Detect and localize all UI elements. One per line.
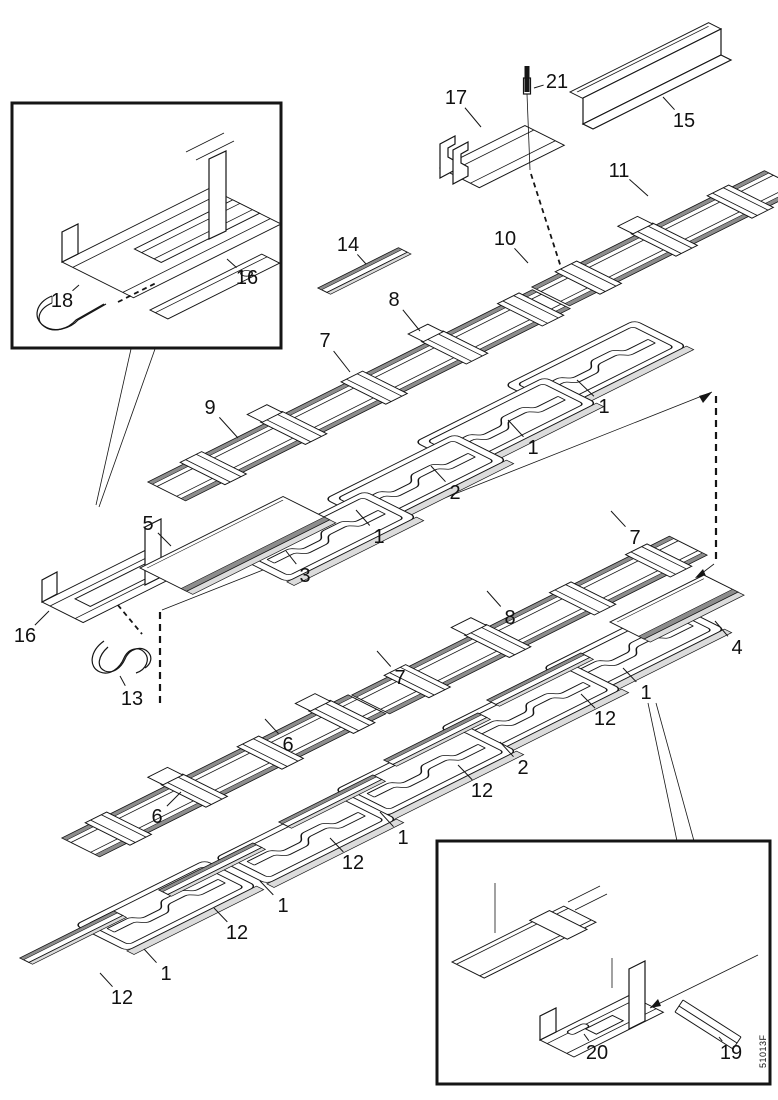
callout-label-1: 1 (598, 396, 609, 418)
callout-label-5: 5 (142, 513, 153, 535)
channel-bracket-17 (440, 126, 564, 188)
cable-strap-13 (92, 641, 151, 673)
callout-label-20: 20 (586, 1042, 608, 1064)
callout-label-14: 14 (337, 234, 359, 256)
leader-line (403, 310, 420, 331)
callout-label-7: 7 (394, 667, 405, 689)
parts-diagram-page: 51013F (0, 0, 778, 1100)
leader-line (35, 611, 49, 625)
angle-bracket-15 (570, 23, 731, 129)
leader-line (334, 351, 350, 372)
callout-label-8: 8 (504, 607, 515, 629)
callout-label-16: 16 (236, 267, 258, 289)
callout-label-10: 10 (494, 228, 516, 250)
figure-code: 51013F (758, 1034, 768, 1068)
callout-label-2: 2 (517, 757, 528, 779)
callout-label-4: 4 (731, 637, 742, 659)
leader-line (629, 179, 648, 196)
leader-line (611, 511, 626, 527)
callout-label-7: 7 (319, 330, 330, 352)
callout-label-2: 2 (449, 482, 460, 504)
channel-end-plate (629, 961, 645, 1029)
leader-line (219, 417, 238, 438)
leader-line (663, 97, 675, 110)
callout-label-12: 12 (111, 987, 133, 1009)
callout-label-3: 3 (299, 565, 310, 587)
callout-label-1: 1 (397, 827, 408, 849)
leader-line (487, 591, 501, 607)
callout-label-7: 7 (629, 527, 640, 549)
callout-label-1: 1 (160, 963, 171, 985)
leader-line (534, 85, 544, 88)
callout-label-12: 12 (342, 852, 364, 874)
callout-label-1: 1 (527, 437, 538, 459)
screw-21 (524, 66, 567, 283)
callout-label-1: 1 (640, 682, 651, 704)
callout-label-19: 19 (720, 1042, 742, 1064)
callout-label-8: 8 (388, 289, 399, 311)
channel-end-plate (209, 151, 226, 239)
callout-label-12: 12 (471, 780, 493, 802)
callout-label-12: 12 (226, 922, 248, 944)
rail-end (449, 905, 598, 980)
rail-ladder (130, 281, 573, 503)
leader-line (72, 285, 79, 291)
rail-ladder (514, 162, 778, 308)
callout-label-1: 1 (373, 526, 384, 548)
callout-label-13: 13 (121, 688, 143, 710)
leader-line (265, 719, 279, 734)
callout-label-9: 9 (204, 397, 215, 419)
callout-label-18: 18 (51, 290, 73, 312)
callout-label-21: 21 (546, 71, 568, 93)
exploded-diagram-canvas: 51013F (0, 0, 778, 1100)
leader-line (144, 949, 157, 963)
callout-label-1: 1 (277, 895, 288, 917)
callout-label-17: 17 (445, 87, 467, 109)
spacer-strip (318, 248, 411, 294)
callout-label-16: 16 (14, 625, 36, 647)
callout-label-15: 15 (673, 110, 695, 132)
leader-line (120, 676, 125, 686)
leader-line (377, 651, 391, 667)
callout-label-6: 6 (282, 734, 293, 756)
callout-label-11: 11 (609, 160, 630, 182)
callout-label-12: 12 (594, 708, 616, 730)
leader-line (514, 248, 528, 263)
callout-label-6: 6 (151, 806, 162, 828)
leader-line (100, 973, 113, 987)
leader-line (465, 108, 481, 127)
